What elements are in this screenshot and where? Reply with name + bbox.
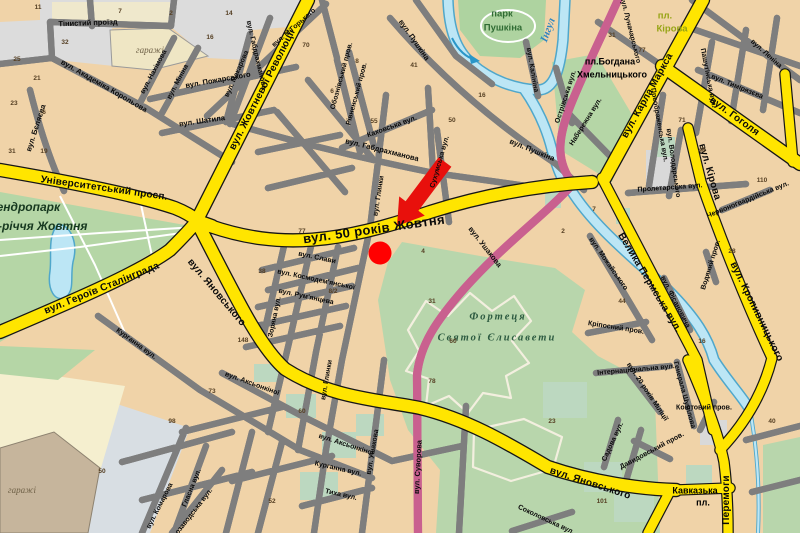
marker-dot xyxy=(369,242,392,265)
city-map-canvas[interactable] xyxy=(0,0,800,533)
city-map-viewport[interactable]: Тінистий проїздгаражівул. Академіка Коро… xyxy=(0,0,800,533)
